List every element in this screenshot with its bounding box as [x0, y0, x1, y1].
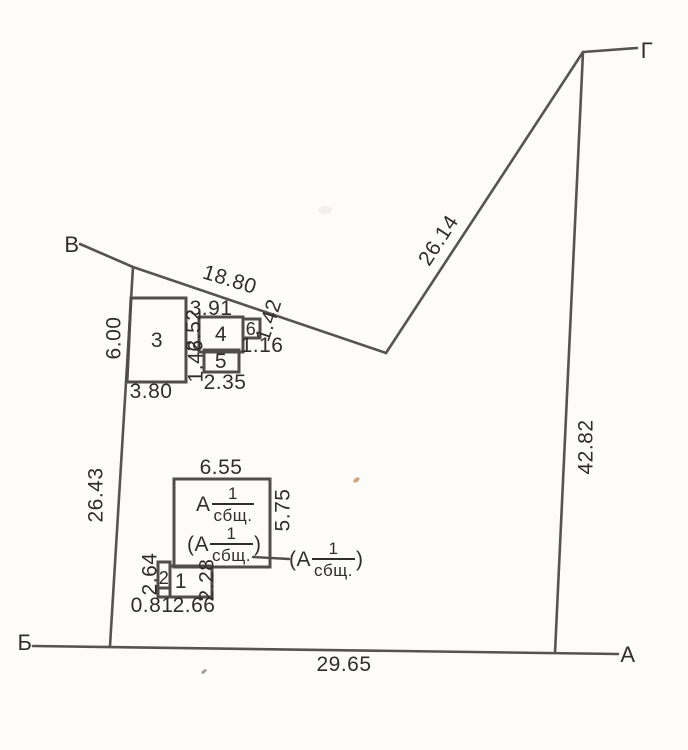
- boundary-line-right: [555, 52, 583, 653]
- dim-main-right-5-75: 5.75: [271, 489, 294, 532]
- annex-1-number: 1: [175, 570, 187, 593]
- boundary-line-v-corner-segment: [80, 244, 133, 267]
- plot-plan-drawing: В Г Б А 18.80 26.14 42.82 29.65 6.00 26.…: [0, 0, 688, 750]
- corner-label-g: Г: [641, 38, 653, 63]
- dim-annex-1-bottom-2-66: 2.66: [173, 594, 216, 617]
- corner-label-v: В: [64, 232, 79, 257]
- dim-bottom-29-65: 29.65: [316, 653, 371, 676]
- building-4-number: 4: [215, 323, 227, 346]
- apartment-label-fraction: 1 сбщ.: [312, 540, 355, 581]
- apartment-label-fraction: 1 сбщ.: [212, 485, 255, 526]
- apartment-label-letter: А: [196, 493, 211, 517]
- boundary-line-upper-right: [386, 52, 583, 353]
- corner-tick-g: [583, 48, 637, 52]
- dim-building-5-bottom-2-35: 2.35: [204, 371, 247, 394]
- apartment-label-inside-top: А 1 сбщ.: [196, 485, 255, 526]
- scanned-survey-plan-page: В Г Б А 18.80 26.14 42.82 29.65 6.00 26.…: [0, 0, 688, 750]
- dim-annex-2-left-2-64: 2.64: [138, 553, 161, 596]
- dim-building-3-bottom-3-80: 3.80: [130, 380, 173, 403]
- apartment-label-outside: (А 1 сбщ. ): [289, 540, 363, 581]
- dim-left-upper-6-00: 6.00: [102, 317, 125, 360]
- dim-building-6-bottom-1-16: 1.16: [241, 334, 284, 357]
- scan-smudge: [318, 206, 332, 214]
- apartment-label-letter: (А: [187, 533, 209, 557]
- corner-label-a: А: [620, 642, 635, 667]
- apartment-label-inside-bottom: (А 1 сбщ. ): [187, 525, 261, 566]
- apartment-label-fraction: 1 сбщ.: [210, 525, 253, 566]
- apartment-label-letter: (А: [289, 548, 311, 572]
- building-5-number: 5: [215, 350, 227, 373]
- dim-right-42-82: 42.82: [574, 419, 597, 474]
- dim-left-lower-26-43: 26.43: [84, 467, 107, 522]
- dim-main-top-6-55: 6.55: [200, 456, 243, 479]
- corner-label-b: Б: [18, 630, 33, 655]
- dim-upper-right-26-14: 26.14: [414, 211, 463, 270]
- building-3-number: 3: [151, 329, 163, 352]
- dim-annex-2-bottom-0-81: 0.81: [131, 594, 174, 617]
